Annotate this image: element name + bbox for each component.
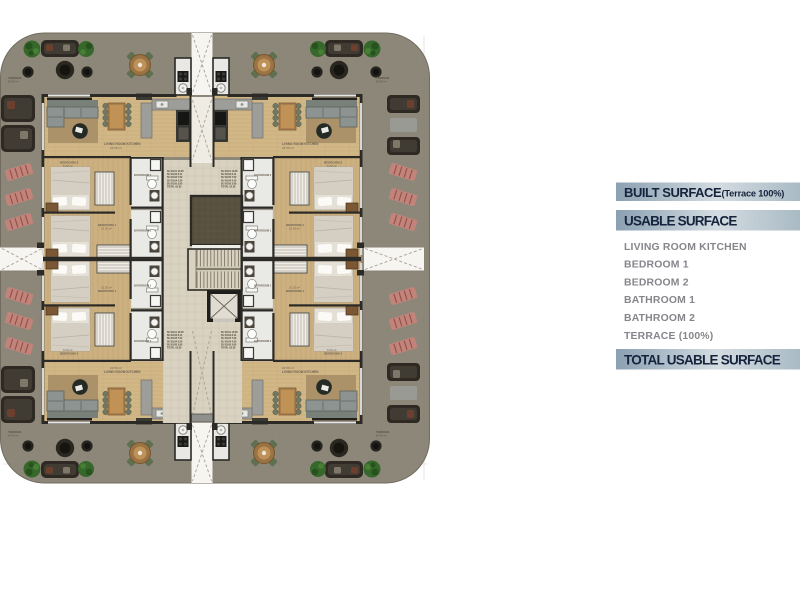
svg-text:BATHROOM 1: BATHROOM 1	[254, 284, 272, 288]
svg-text:USABLE SURFACE: USABLE SURFACE	[624, 214, 737, 229]
svg-text:BEDROOM 2: BEDROOM 2	[624, 277, 689, 288]
svg-text:9.20 m²: 9.20 m²	[63, 348, 73, 352]
svg-text:BEDROOM 1: BEDROOM 1	[624, 260, 689, 271]
svg-text:LIVING ROOM KITCHEN: LIVING ROOM KITCHEN	[624, 242, 747, 253]
svg-text:10.20 m²: 10.20 m²	[101, 227, 112, 231]
svg-text:BATHROOM 1: BATHROOM 1	[254, 229, 272, 233]
svg-text:TOTAL 62.30: TOTAL 62.30	[221, 186, 236, 189]
svg-text:10.20 m²: 10.20 m²	[101, 285, 112, 289]
svg-text:9.20 m²: 9.20 m²	[327, 164, 337, 168]
svg-text:BATHROOM 1: BATHROOM 1	[624, 295, 695, 306]
svg-text:30.40 m²: 30.40 m²	[376, 79, 386, 83]
svg-text:BEDROOM 2: BEDROOM 2	[60, 352, 79, 356]
svg-text:BATHROOM 2: BATHROOM 2	[134, 173, 152, 177]
svg-text:24.50 m²: 24.50 m²	[282, 146, 294, 150]
svg-text:TOTAL USABLE SURFACE: TOTAL USABLE SURFACE	[624, 353, 781, 368]
svg-text:TERRACE: TERRACE	[376, 430, 390, 434]
svg-text:TOTAL 62.30: TOTAL 62.30	[221, 347, 236, 350]
svg-text:BEDROOM 1: BEDROOM 1	[98, 289, 117, 293]
svg-text:10.20 m²: 10.20 m²	[289, 285, 300, 289]
svg-text:24.50 m²: 24.50 m²	[282, 366, 294, 370]
svg-text:9.20 m²: 9.20 m²	[327, 348, 337, 352]
svg-text:TOTAL 62.30: TOTAL 62.30	[167, 347, 182, 350]
svg-text:9.20 m²: 9.20 m²	[63, 164, 73, 168]
svg-text:30.40 m²: 30.40 m²	[8, 79, 18, 83]
svg-text:30.40 m²: 30.40 m²	[376, 433, 386, 437]
svg-text:BATHROOM 2: BATHROOM 2	[134, 339, 152, 343]
svg-text:TERRACE: TERRACE	[376, 76, 390, 80]
svg-text:TOTAL 62.30: TOTAL 62.30	[167, 186, 182, 189]
svg-text:TERRACE (100%): TERRACE (100%)	[624, 331, 713, 342]
svg-text:BUILT SURFACE: BUILT SURFACE	[624, 185, 722, 200]
svg-text:LIVING ROOM KITCHEN: LIVING ROOM KITCHEN	[282, 370, 319, 374]
svg-text:BATHROOM 1: BATHROOM 1	[134, 284, 152, 288]
svg-text:LIVING ROOM KITCHEN: LIVING ROOM KITCHEN	[104, 370, 141, 374]
svg-text:(Terrace 100%): (Terrace 100%)	[722, 189, 785, 199]
svg-text:BEDROOM 1: BEDROOM 1	[286, 289, 305, 293]
svg-text:BATHROOM 2: BATHROOM 2	[254, 339, 272, 343]
svg-text:24.50 m²: 24.50 m²	[110, 366, 122, 370]
svg-text:BATHROOM 2: BATHROOM 2	[624, 313, 695, 324]
svg-text:10.20 m²: 10.20 m²	[289, 227, 300, 231]
svg-text:24.50 m²: 24.50 m²	[110, 146, 122, 150]
svg-text:BATHROOM 2: BATHROOM 2	[254, 173, 272, 177]
svg-text:TERRACE: TERRACE	[8, 76, 22, 80]
svg-text:TERRACE: TERRACE	[8, 430, 22, 434]
svg-text:BATHROOM 1: BATHROOM 1	[134, 229, 152, 233]
svg-text:30.40 m²: 30.40 m²	[8, 433, 18, 437]
svg-text:BEDROOM 2: BEDROOM 2	[324, 352, 343, 356]
